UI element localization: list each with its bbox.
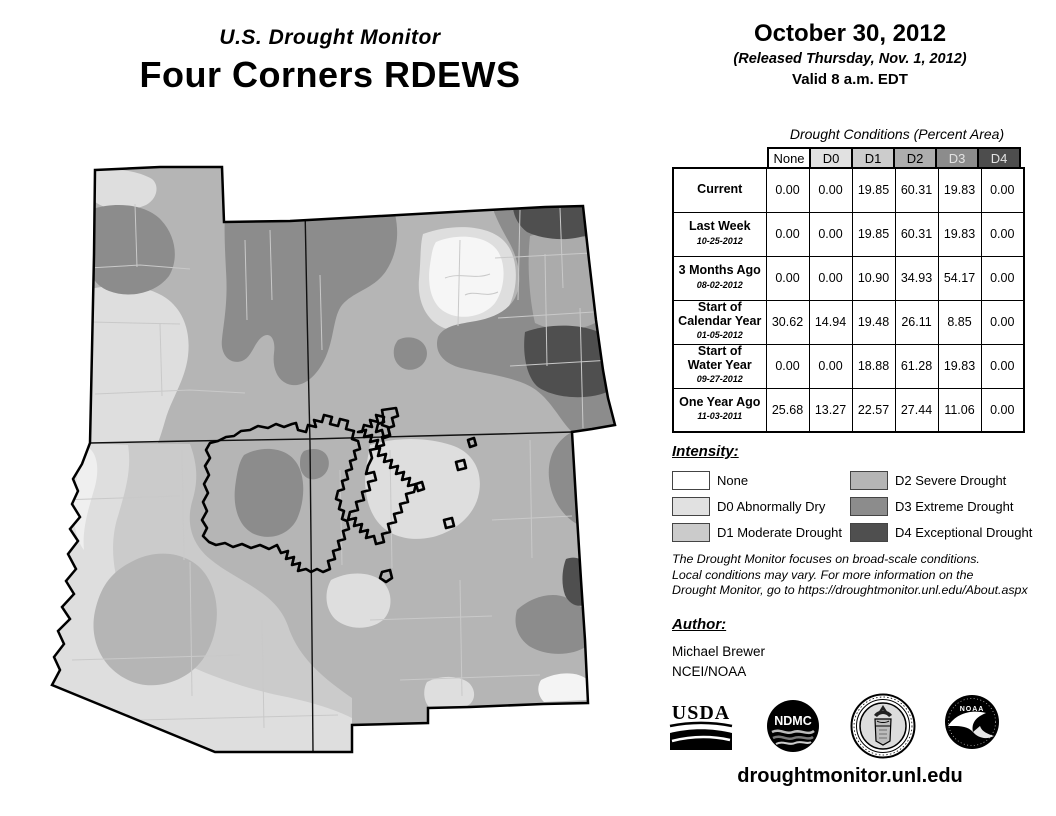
legend-item-d2: D2 Severe Drought [850, 467, 1036, 493]
row-label: Start ofWater Year09-27-2012 [673, 344, 766, 388]
row-label: 3 Months Ago08-02-2012 [673, 256, 766, 300]
table-row: 3 Months Ago08-02-2012 0.00 0.00 10.90 3… [673, 256, 1024, 300]
drought-map [40, 140, 660, 790]
row-label: Last Week10-25-2012 [673, 212, 766, 256]
legend-heading: Intensity: [672, 443, 1036, 460]
svg-text:USDA: USDA [672, 702, 730, 724]
legend-item-d0: D0 Abnormally Dry [672, 493, 850, 519]
author-name: Michael Brewer [672, 644, 765, 659]
col-header-d3: D3 [935, 147, 979, 169]
title-block: U.S. Drought Monitor Four Corners RDEWS [40, 26, 620, 96]
author-org: NCEI/NOAA [672, 664, 765, 679]
col-header-none: None [767, 147, 811, 169]
legend-item-d1: D1 Moderate Drought [672, 519, 850, 545]
col-header-d2: D2 [893, 147, 937, 169]
legend-swatch-d1 [672, 523, 710, 542]
table-row: Start ofWater Year09-27-2012 0.00 0.00 1… [673, 344, 1024, 388]
legend-swatch-d4 [850, 523, 888, 542]
table-row: Current 0.00 0.00 19.85 60.31 19.83 0.00 [673, 168, 1024, 212]
legend-swatch-d2 [850, 471, 888, 490]
author-block: Author: Michael Brewer NCEI/NOAA [672, 616, 765, 679]
table-header-row: None D0 D1 D2 D3 D4 [767, 147, 1021, 169]
valid-time: Valid 8 a.m. EDT [668, 71, 1032, 88]
row-label: Current [673, 168, 766, 212]
usda-logo: USDA [668, 702, 734, 752]
region-title: Four Corners RDEWS [40, 54, 620, 96]
dept-of-commerce-seal [850, 693, 916, 759]
svg-text:NDMC: NDMC [774, 714, 812, 728]
footer-url: droughtmonitor.unl.edu [668, 765, 1032, 788]
col-header-d1: D1 [851, 147, 895, 169]
drought-conditions-table: Current 0.00 0.00 19.85 60.31 19.83 0.00… [672, 167, 1025, 433]
author-heading: Author: [672, 616, 765, 633]
drought-map-svg [40, 140, 660, 790]
legend-swatch-d0 [672, 497, 710, 516]
drought-monitor-page: U.S. Drought Monitor Four Corners RDEWS … [0, 0, 1056, 816]
row-label: One Year Ago11-03-2011 [673, 388, 766, 432]
col-header-d4: D4 [977, 147, 1021, 169]
table-row: One Year Ago11-03-2011 25.68 13.27 22.57… [673, 388, 1024, 432]
row-label: Start ofCalendar Year01-05-2012 [673, 300, 766, 344]
table-row: Last Week10-25-2012 0.00 0.00 19.85 60.3… [673, 212, 1024, 256]
legend-swatch-none [672, 471, 710, 490]
legend-item-d3: D3 Extreme Drought [850, 493, 1036, 519]
noaa-logo: NOAA [944, 694, 1000, 750]
report-series-title: U.S. Drought Monitor [40, 26, 620, 50]
ndmc-logo: NDMC [766, 699, 820, 753]
map-date: October 30, 2012 [668, 20, 1032, 48]
table-title: Drought Conditions (Percent Area) [740, 126, 1054, 142]
legend-item-none: None [672, 467, 850, 493]
legend-item-d4: D4 Exceptional Drought [850, 519, 1036, 545]
date-block: October 30, 2012 (Released Thursday, Nov… [668, 20, 1032, 88]
logo-row: USDA NDMC NOAA [664, 690, 1036, 762]
col-header-d0: D0 [809, 147, 853, 169]
release-date: (Released Thursday, Nov. 1, 2012) [668, 51, 1032, 67]
legend-swatch-d3 [850, 497, 888, 516]
intensity-legend: Intensity: None D0 Abnormally Dry D1 Mod… [672, 443, 1036, 545]
disclaimer-text: The Drought Monitor focuses on broad-sca… [672, 552, 1036, 599]
table-row: Start ofCalendar Year01-05-2012 30.62 14… [673, 300, 1024, 344]
